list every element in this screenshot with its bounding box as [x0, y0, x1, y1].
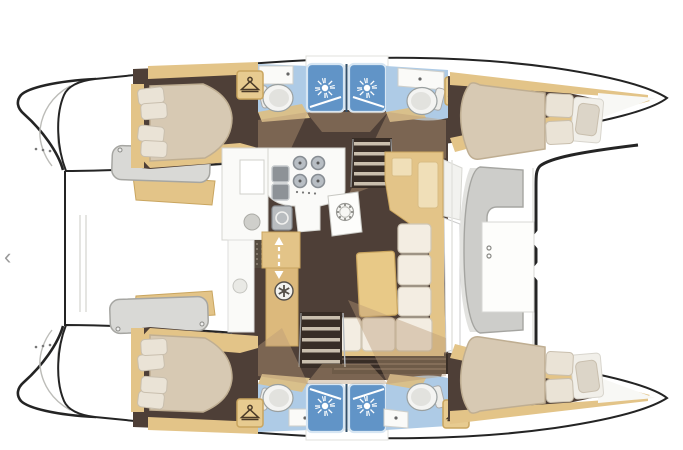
- sofa-cushion: [398, 255, 431, 285]
- stairs-bottom-hull: [299, 312, 345, 368]
- sofa-cushion: [398, 224, 431, 253]
- cockpit-door: [482, 222, 534, 312]
- speaker-hatch-icon: [337, 204, 354, 221]
- shower-head-icon: [315, 78, 335, 98]
- toilet-fwd-top: [407, 87, 446, 114]
- saloon-hatch-panel: [328, 192, 362, 236]
- fan-icon: [275, 282, 293, 300]
- round-sink: [244, 214, 260, 230]
- shower-head-icon: [357, 78, 377, 98]
- galley-appliance: [272, 206, 292, 230]
- cutting-board: [240, 160, 264, 194]
- sofa-cushion: [398, 287, 431, 316]
- bed-bow-top: [461, 83, 545, 159]
- hanging-locker-aft-bottom: [237, 399, 263, 427]
- shower-stalls-top: [306, 56, 388, 112]
- hanging-locker-aft-top: [237, 71, 263, 99]
- floorplan-image: ‹: [0, 0, 683, 450]
- stern-crossbar: [65, 171, 86, 326]
- toilet-fwd-bottom: [407, 384, 446, 411]
- catamaran-floorplan-svg: [0, 0, 683, 450]
- shower-head-icon: [315, 396, 335, 416]
- bed-bow-bottom: [461, 337, 545, 413]
- sidedeck-items-bottom: [109, 291, 215, 334]
- shower-stalls-bottom: [306, 384, 388, 440]
- cabinet-handle: [233, 279, 247, 293]
- shower-head-icon: [357, 396, 377, 416]
